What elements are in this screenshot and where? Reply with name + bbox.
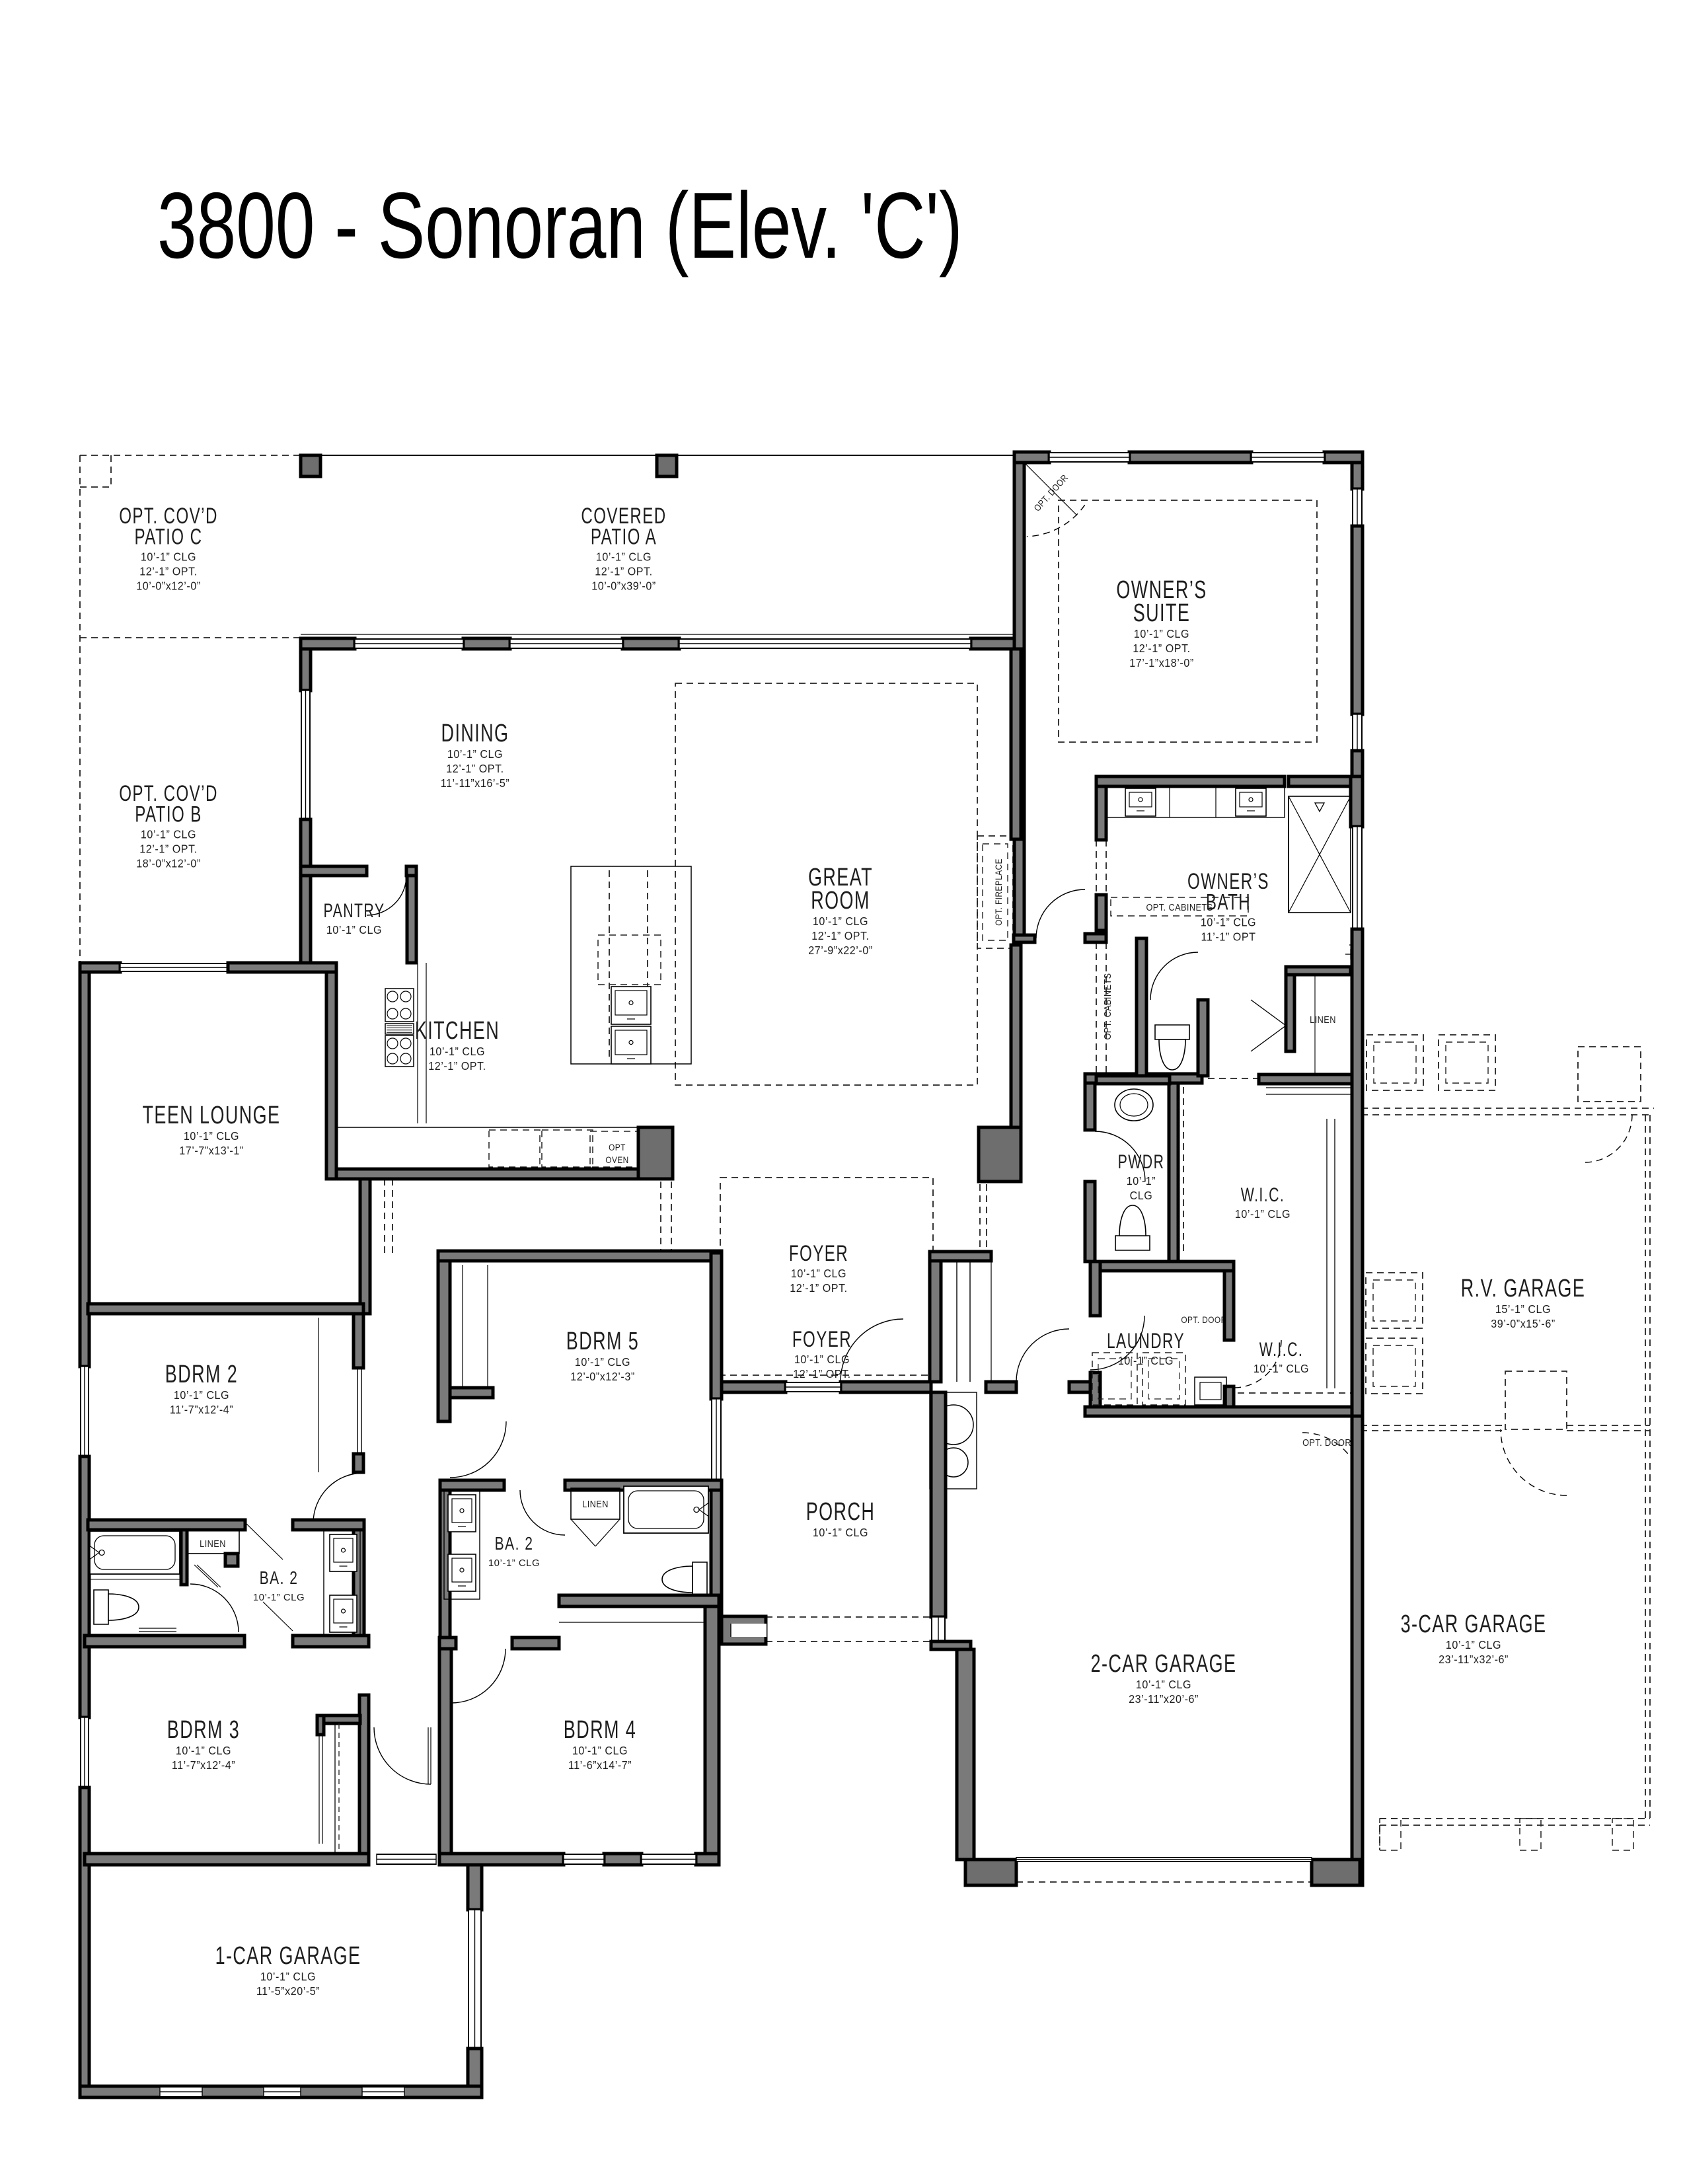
svg-text:10’-1” CLG: 10’-1” CLG — [176, 1744, 231, 1757]
svg-text:PATIO B: PATIO B — [135, 802, 202, 827]
svg-text:10’-1” CLG: 10’-1” CLG — [184, 1129, 239, 1143]
svg-text:10’-1” CLG: 10’-1” CLG — [1201, 916, 1256, 929]
svg-text:12’-1” OPT.: 12’-1” OPT. — [790, 1281, 847, 1295]
svg-text:17’-7”x13’-1”: 17’-7”x13’-1” — [179, 1144, 243, 1157]
svg-text:KITCHEN: KITCHEN — [415, 1016, 500, 1044]
svg-text:PATIO C: PATIO C — [135, 524, 203, 549]
svg-text:1-CAR GARAGE: 1-CAR GARAGE — [215, 1941, 361, 1969]
svg-text:OPT. FIREPLACE: OPT. FIREPLACE — [993, 858, 1004, 926]
svg-text:LAUNDRY: LAUNDRY — [1107, 1329, 1185, 1353]
svg-text:10’-1” CLG: 10’-1” CLG — [813, 915, 868, 928]
svg-text:OPT. DOOR: OPT. DOOR — [1181, 1314, 1226, 1325]
svg-text:FOYER: FOYER — [792, 1327, 852, 1352]
svg-text:12’-1” OPT.: 12’-1” OPT. — [139, 843, 197, 856]
svg-text:12’-1” OPT.: 12’-1” OPT. — [139, 565, 197, 578]
svg-text:OPT. CABINETS: OPT. CABINETS — [1146, 901, 1213, 913]
svg-text:10’-1”: 10’-1” — [1127, 1174, 1156, 1187]
svg-text:23’-11”x20’-6”: 23’-11”x20’-6” — [1129, 1692, 1199, 1706]
svg-text:PANTRY: PANTRY — [324, 899, 385, 922]
svg-text:10’-1” CLG: 10’-1” CLG — [813, 1526, 868, 1539]
svg-text:3800 - Sonoran (Elev. 'C'): 3800 - Sonoran (Elev. 'C') — [157, 172, 963, 278]
svg-text:ROOM: ROOM — [811, 885, 870, 914]
svg-text:12’-1” OPT.: 12’-1” OPT. — [811, 929, 869, 942]
svg-text:3-CAR GARAGE: 3-CAR GARAGE — [1401, 1609, 1547, 1638]
svg-text:BA. 2: BA. 2 — [495, 1534, 534, 1554]
svg-text:OPT. DOOR: OPT. DOOR — [1302, 1437, 1351, 1448]
svg-text:10’-1” CLG: 10’-1” CLG — [326, 923, 382, 936]
svg-text:SUITE: SUITE — [1133, 598, 1191, 626]
svg-text:BDRM 4: BDRM 4 — [564, 1715, 636, 1743]
svg-text:10’-1” CLG: 10’-1” CLG — [1254, 1362, 1309, 1375]
svg-text:10’-1” CLG: 10’-1” CLG — [791, 1267, 846, 1280]
svg-text:OPT: OPT — [609, 1142, 626, 1152]
svg-text:10’-1” CLG: 10’-1” CLG — [596, 550, 652, 564]
svg-text:BATH: BATH — [1206, 889, 1251, 915]
svg-text:W.I.C.: W.I.C. — [1259, 1337, 1303, 1361]
svg-text:15’-1” CLG: 15’-1” CLG — [1495, 1302, 1551, 1316]
svg-text:10’-1” CLG: 10’-1” CLG — [430, 1045, 485, 1058]
svg-text:OVEN: OVEN — [605, 1154, 628, 1165]
svg-text:11’-5”x20’-5”: 11’-5”x20’-5” — [256, 1984, 320, 1998]
svg-text:BDRM 3: BDRM 3 — [167, 1715, 240, 1743]
svg-text:11’-7”x12’-4”: 11’-7”x12’-4” — [172, 1758, 235, 1772]
svg-text:FOYER: FOYER — [789, 1241, 848, 1266]
svg-text:10’-0”x12’-0”: 10’-0”x12’-0” — [136, 580, 200, 593]
svg-text:18’-0”x12’-0”: 18’-0”x12’-0” — [136, 857, 200, 870]
svg-text:CLG: CLG — [1130, 1189, 1153, 1202]
svg-text:11’-1” OPT: 11’-1” OPT — [1201, 930, 1256, 944]
svg-text:10’-1” CLG: 10’-1” CLG — [253, 1592, 305, 1603]
svg-text:17’-1”x18’-0”: 17’-1”x18’-0” — [1129, 656, 1193, 669]
svg-text:10’-1” CLG: 10’-1” CLG — [447, 747, 503, 761]
svg-text:27’-9”x22’-0”: 27’-9”x22’-0” — [808, 944, 872, 957]
svg-text:LINEN: LINEN — [200, 1538, 226, 1549]
svg-text:11’-6”x14’-7”: 11’-6”x14’-7” — [568, 1758, 632, 1772]
svg-text:PATIO A: PATIO A — [591, 524, 657, 549]
svg-text:10’-1” CLG: 10’-1” CLG — [1118, 1354, 1174, 1367]
svg-text:PWDR: PWDR — [1118, 1150, 1165, 1173]
svg-text:10’-1” CLG: 10’-1” CLG — [1235, 1207, 1291, 1221]
svg-text:PORCH: PORCH — [806, 1497, 875, 1525]
svg-text:10’-1” CLG: 10’-1” CLG — [260, 1970, 316, 1983]
svg-text:2-CAR GARAGE: 2-CAR GARAGE — [1091, 1649, 1237, 1677]
svg-text:12’-1” OPT.: 12’-1” OPT. — [428, 1059, 486, 1073]
svg-text:BDRM 2: BDRM 2 — [165, 1359, 238, 1388]
svg-text:12’-1” OPT.: 12’-1” OPT. — [595, 565, 652, 578]
svg-text:W.I.C.: W.I.C. — [1241, 1183, 1285, 1206]
svg-text:R.V. GARAGE: R.V. GARAGE — [1461, 1273, 1585, 1302]
svg-text:10’-1” CLG: 10’-1” CLG — [1136, 1678, 1191, 1691]
svg-text:12’-0”x12’-3”: 12’-0”x12’-3” — [570, 1370, 634, 1383]
svg-text:12’-1” OPT.: 12’-1” OPT. — [1133, 642, 1190, 655]
svg-text:OPT. CABINETS: OPT. CABINETS — [1102, 973, 1113, 1039]
svg-text:BA. 2: BA. 2 — [260, 1568, 299, 1589]
svg-text:10’-1” CLG: 10’-1” CLG — [174, 1388, 229, 1402]
svg-text:10’-1” CLG: 10’-1” CLG — [488, 1558, 540, 1569]
svg-text:12’-1” OPT.: 12’-1” OPT. — [446, 762, 504, 775]
svg-text:BDRM 5: BDRM 5 — [566, 1326, 639, 1355]
svg-text:10’-0”x39’-0”: 10’-0”x39’-0” — [591, 580, 655, 593]
svg-text:10’-1” CLG: 10’-1” CLG — [1134, 627, 1189, 640]
svg-text:12’-1” OPT.: 12’-1” OPT. — [793, 1367, 850, 1380]
svg-text:10’-1” CLG: 10’-1” CLG — [1446, 1638, 1501, 1651]
svg-text:10’-1” CLG: 10’-1” CLG — [141, 828, 196, 841]
svg-text:11’-11”x16’-5”: 11’-11”x16’-5” — [441, 776, 510, 790]
svg-text:LINEN: LINEN — [582, 1498, 609, 1509]
svg-text:10’-1” CLG: 10’-1” CLG — [575, 1355, 630, 1369]
svg-text:TEEN LOUNGE: TEEN LOUNGE — [143, 1100, 281, 1129]
svg-text:11’-7”x12’-4”: 11’-7”x12’-4” — [170, 1403, 233, 1416]
svg-text:DINING: DINING — [441, 718, 509, 747]
svg-text:39’-0”x15’-6”: 39’-0”x15’-6” — [1491, 1317, 1555, 1330]
svg-text:10’-1” CLG: 10’-1” CLG — [794, 1353, 850, 1366]
svg-text:23’-11”x32’-6”: 23’-11”x32’-6” — [1439, 1653, 1509, 1666]
svg-text:10’-1” CLG: 10’-1” CLG — [141, 550, 196, 564]
svg-text:LINEN: LINEN — [1310, 1014, 1336, 1025]
svg-text:10’-1” CLG: 10’-1” CLG — [572, 1744, 628, 1757]
